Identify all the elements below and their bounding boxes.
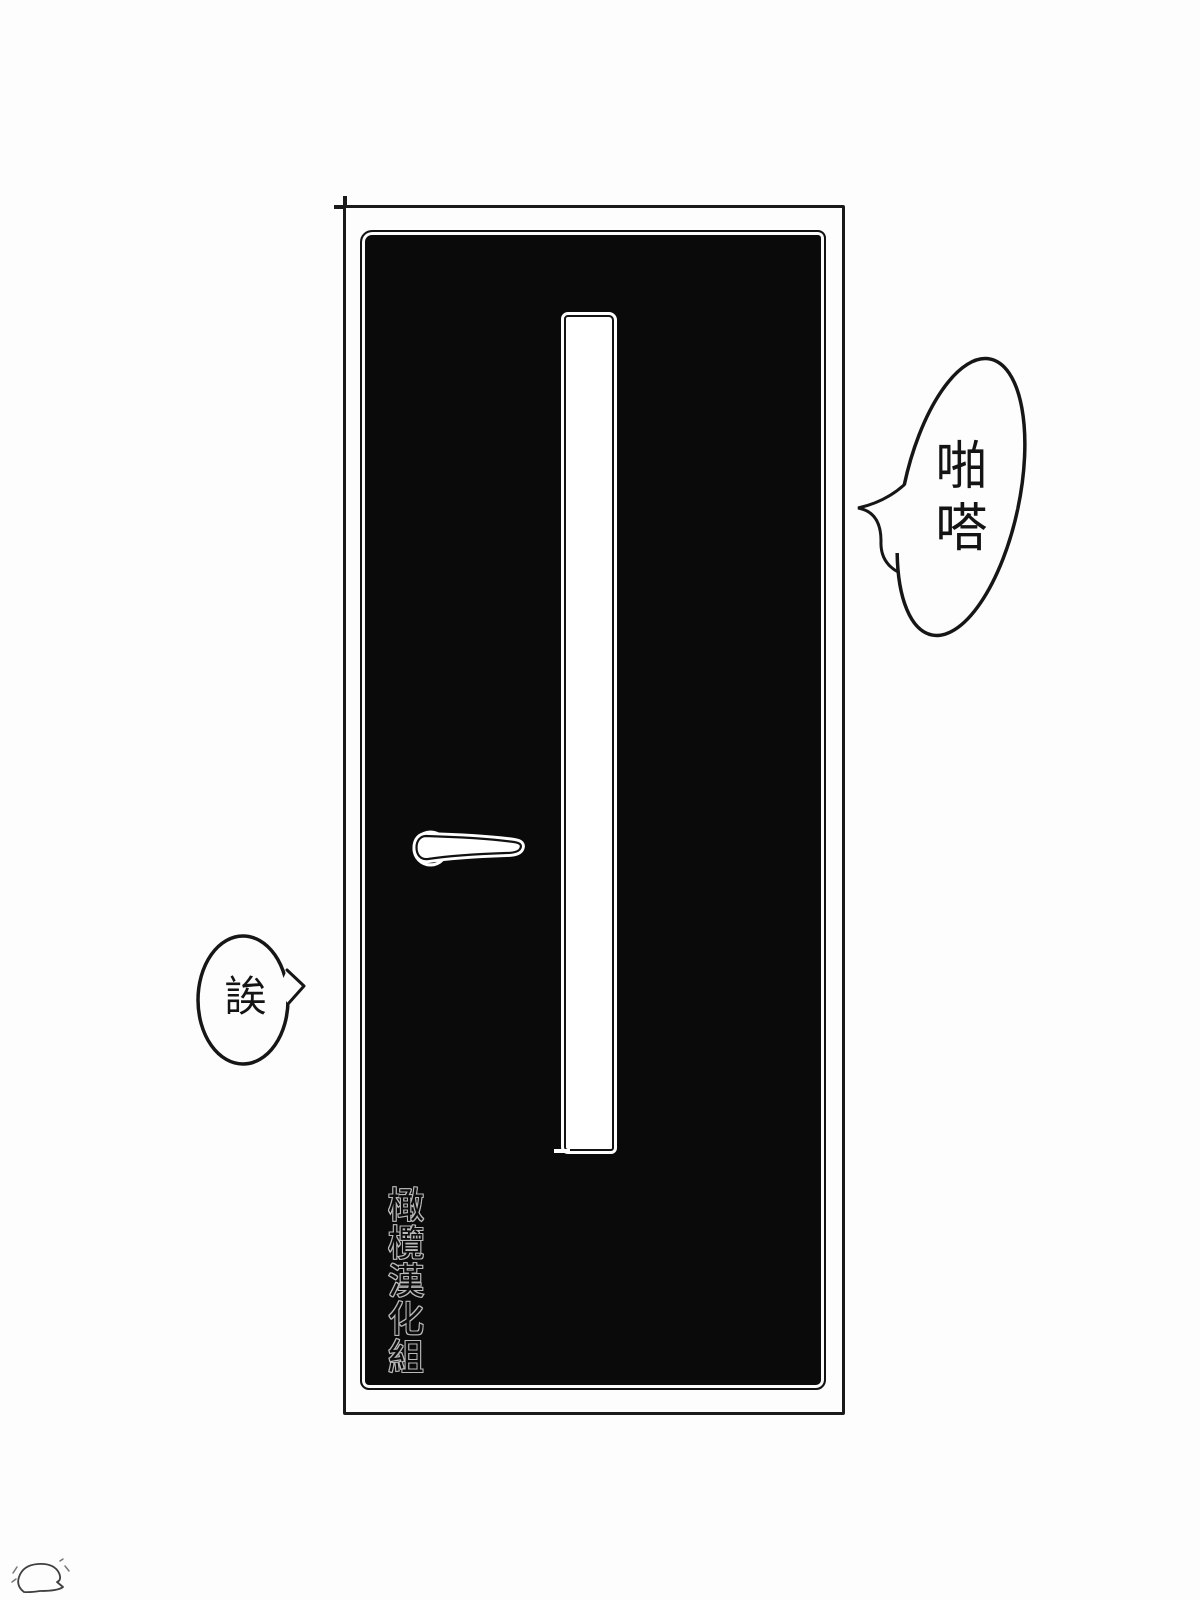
doodle-body xyxy=(18,1564,63,1592)
frame-corner-overshoot-horizontal xyxy=(334,205,346,209)
corner-doodle-icon xyxy=(10,1556,74,1598)
door-window-slit xyxy=(564,315,614,1151)
door-handle-icon xyxy=(398,820,533,880)
manga-page: 啪嗒 誒 橄欖漢化組 xyxy=(0,0,1200,1600)
sfx-text: 啪嗒 xyxy=(930,438,982,562)
translator-credit: 橄欖漢化組 xyxy=(384,1186,420,1376)
reply-text: 誒 xyxy=(221,974,263,1016)
